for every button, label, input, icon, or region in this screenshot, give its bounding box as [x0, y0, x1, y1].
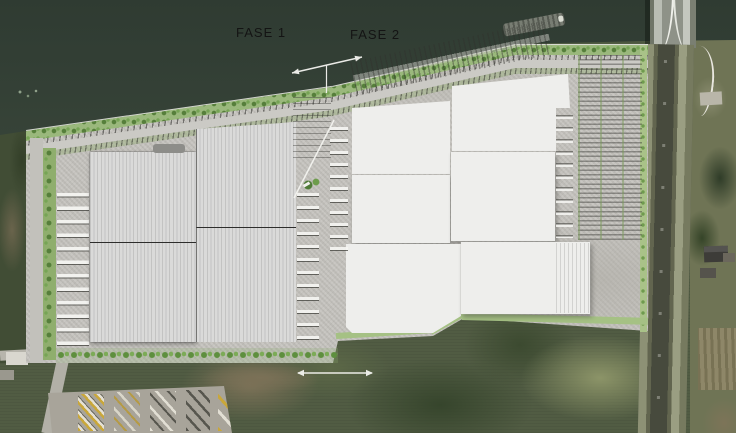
phase2-unit-a	[352, 101, 450, 174]
phase1-entrance-canopy	[153, 144, 185, 153]
phase1-roof-division	[90, 242, 196, 243]
phase2-east-loading-docks	[556, 108, 573, 238]
west-tree-strip	[43, 148, 56, 360]
shed-roof	[700, 91, 723, 105]
parked-trailers-group	[78, 394, 104, 431]
phase2-car-parking	[578, 55, 642, 240]
phase2-unit-b	[452, 73, 570, 151]
phase1-west-loading-docks	[57, 185, 89, 347]
phase1-east-loading-docks	[297, 185, 319, 340]
existing-building	[0, 370, 14, 380]
house-roof	[723, 253, 735, 262]
phase2-unit-d	[451, 152, 555, 241]
west-service-road	[30, 138, 43, 363]
phase2-label: FASE 2	[350, 27, 400, 42]
existing-truck-lot	[46, 386, 234, 433]
phase1-warehouse-right	[196, 121, 296, 342]
parked-trailers-group	[186, 390, 210, 431]
phase2-roof-stripes	[556, 243, 589, 313]
water-debris	[14, 86, 42, 104]
aerial-site-plan: FASE 1 FASE 2	[0, 0, 736, 433]
phase1-label: FASE 1	[236, 25, 286, 40]
phase1-warehouse-left	[90, 152, 196, 342]
parked-trailers-group	[114, 392, 140, 431]
phase1-roof-division	[196, 227, 296, 228]
house-roof	[700, 268, 716, 278]
parked-trailers-group	[150, 391, 176, 431]
phase2-unit-c	[352, 175, 450, 243]
barge-bow	[558, 15, 564, 22]
existing-building	[6, 352, 28, 365]
central-parking-stalls	[293, 96, 331, 158]
crop-rows	[698, 328, 736, 390]
phase2-unit-e	[346, 244, 461, 336]
phase1-roof-seam	[196, 129, 197, 342]
phase2-west-loading-docks	[330, 120, 348, 255]
south-tree-row	[56, 348, 338, 363]
